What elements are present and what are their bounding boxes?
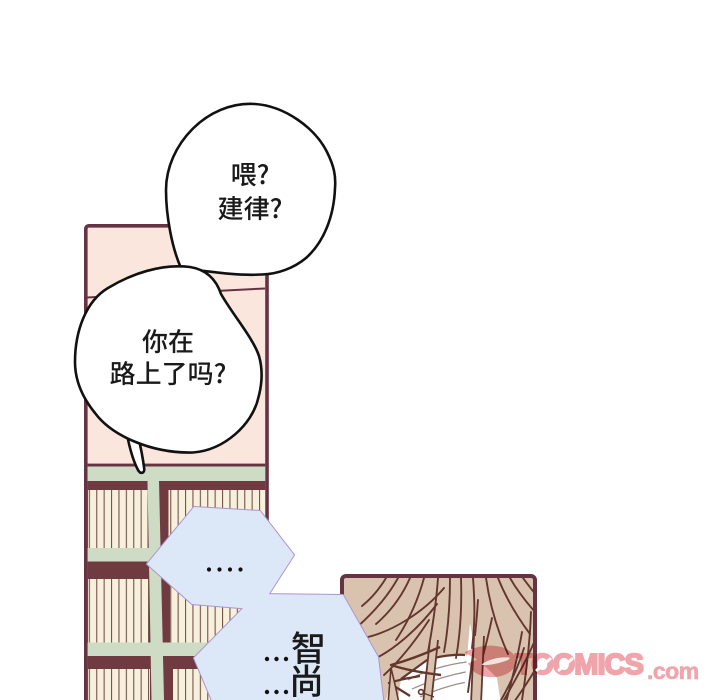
svg-text:.com: .com (647, 658, 699, 684)
svg-text:TOOMICS: TOOMICS (515, 649, 643, 681)
